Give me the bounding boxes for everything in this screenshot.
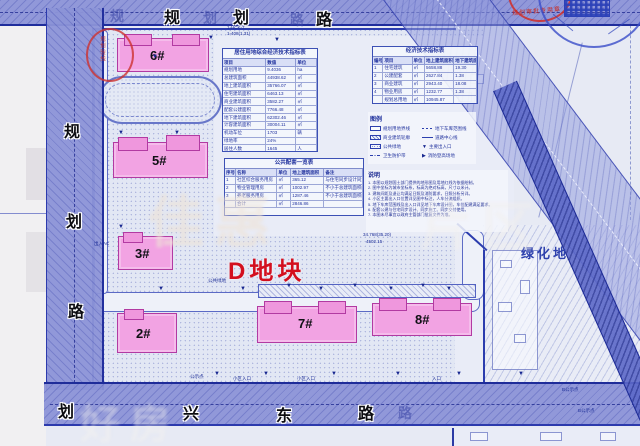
entrance-marker-icon: ▼ [214,371,220,377]
entrance-marker-icon: ▼ [318,286,324,292]
entrance-marker-icon: ▼ [388,286,394,292]
entrance-marker-icon: ▼ [518,371,524,377]
entrance-marker-icon: ▼ [456,371,462,377]
entrance-marker-icon: ▼ [118,130,124,136]
marker-layer: ▼▼▼▼▼▼▼▼▼▼▼▼▼▼▼▼▼▼▼▼ [0,0,640,446]
entrance-marker-icon: ▼ [274,37,280,43]
entrance-marker-icon: ▼ [208,35,214,41]
entrance-marker-icon: ▼ [331,371,337,377]
entrance-marker-icon: ▼ [263,371,269,377]
entrance-marker-icon: ▼ [174,130,180,136]
entrance-marker-icon: ▼ [240,286,246,292]
entrance-marker-icon: ▼ [118,224,124,230]
entrance-marker-icon: ▼ [152,54,158,60]
site-plan-blueprint: 6# 5# 3# 2# 7# 8# 规 划 [0,0,640,446]
entrance-marker-icon: ▼ [158,286,164,292]
entrance-marker-icon: ▼ [395,371,401,377]
entrance-marker-icon: ▼ [352,283,358,289]
entrance-marker-icon: ▼ [286,283,292,289]
entrance-marker-icon: ▼ [420,283,426,289]
entrance-marker-icon: ▼ [446,286,452,292]
